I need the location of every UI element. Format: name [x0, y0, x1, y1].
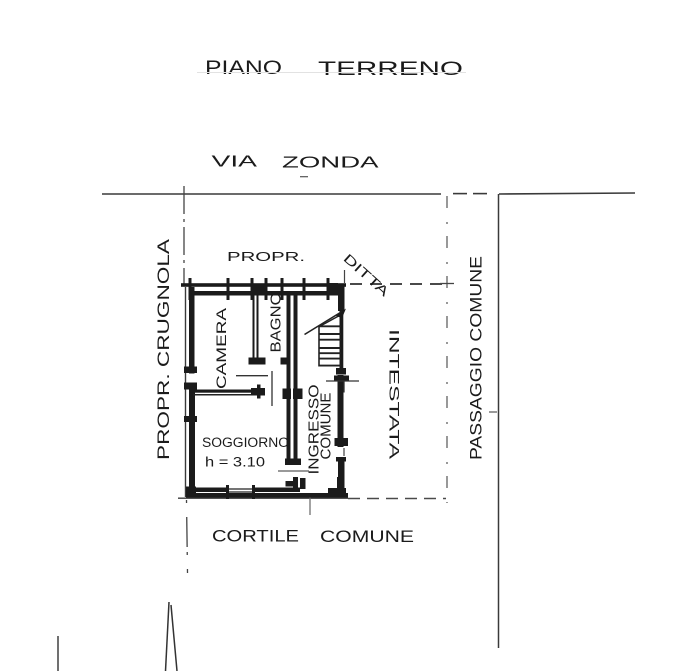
svg-text:COMUNE: COMUNE [319, 392, 335, 459]
svg-text:COMUNE: COMUNE [320, 528, 414, 546]
svg-text:PROPR.: PROPR. [227, 249, 305, 264]
svg-text:TERRENO: TERRENO [318, 59, 463, 80]
svg-text:PIANO: PIANO [205, 58, 282, 79]
svg-text:VIA: VIA [212, 154, 259, 171]
svg-text:CAMERA: CAMERA [213, 307, 229, 389]
svg-text:h = 3.10: h = 3.10 [205, 454, 265, 470]
svg-text:PROPR. CRUGNOLA: PROPR. CRUGNOLA [154, 238, 173, 460]
svg-text:PASSAGGIO COMUNE: PASSAGGIO COMUNE [468, 256, 486, 460]
svg-text:INTESTATA: INTESTATA [387, 329, 403, 460]
svg-text:CORTILE: CORTILE [212, 528, 299, 546]
svg-text:ZONDA: ZONDA [282, 155, 380, 172]
svg-text:BAGNO: BAGNO [268, 293, 285, 353]
svg-text:SOGGIORNO: SOGGIORNO [202, 435, 289, 450]
